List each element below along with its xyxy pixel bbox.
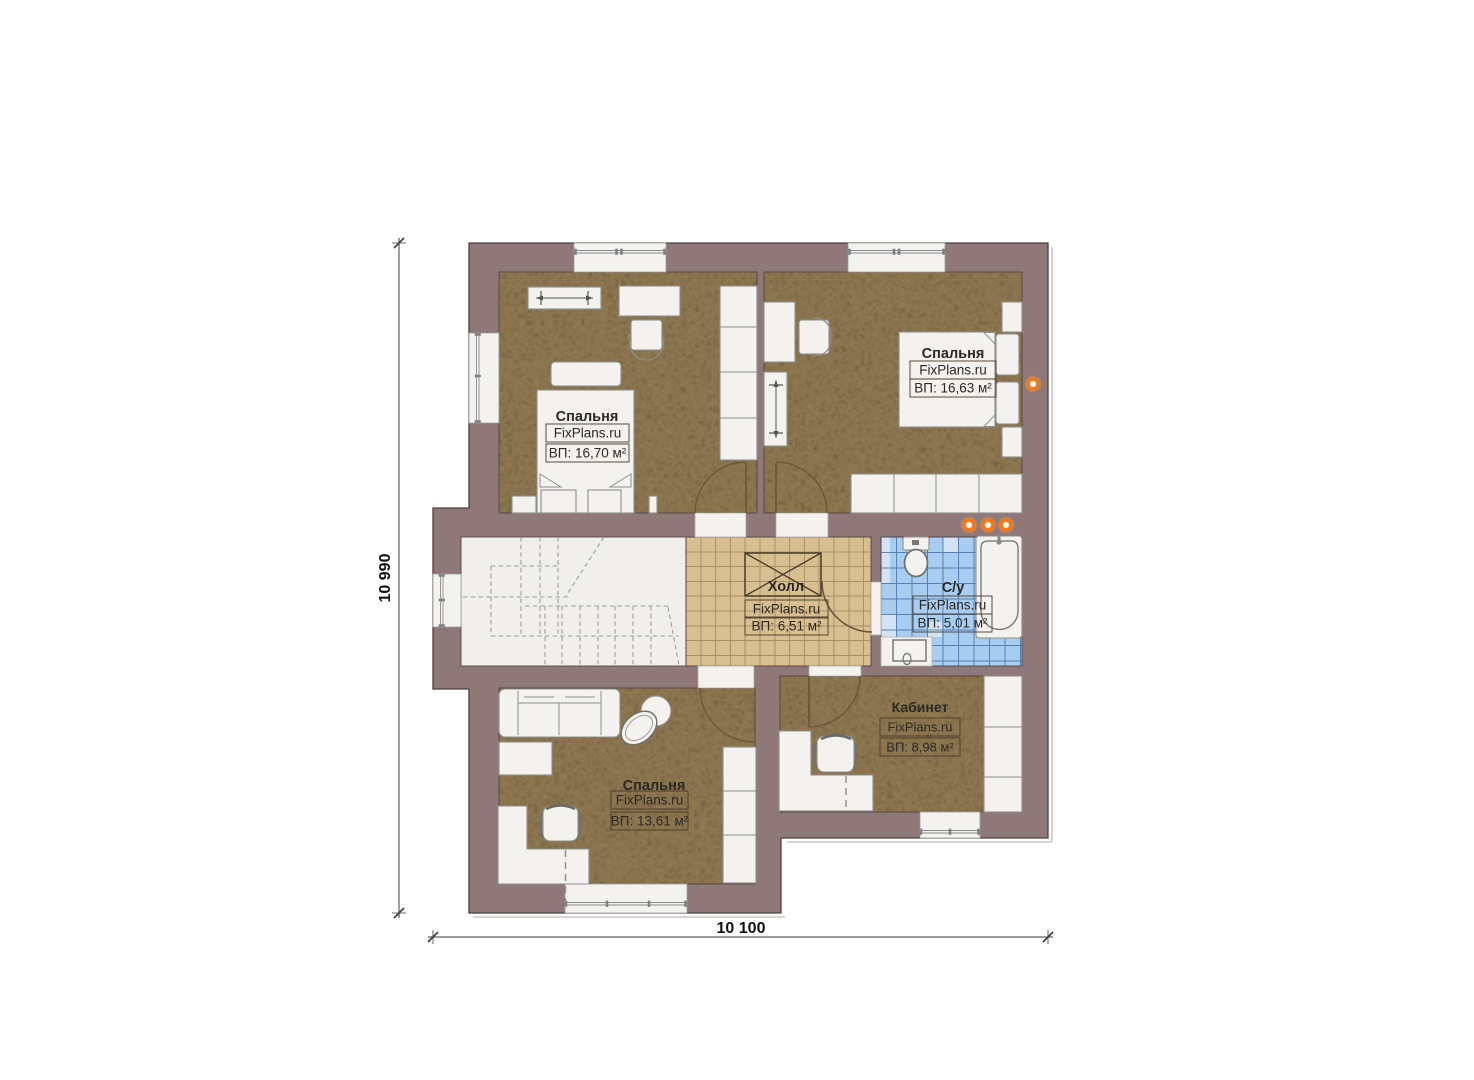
svg-text:FixPlans.ru: FixPlans.ru: [919, 598, 987, 613]
svg-text:ВП: 16,70 м²: ВП: 16,70 м²: [549, 446, 627, 461]
svg-text:ВП: 13,61 м²: ВП: 13,61 м²: [611, 814, 689, 829]
svg-text:Кабинет: Кабинет: [892, 699, 949, 715]
svg-text:Спальня: Спальня: [556, 409, 619, 425]
svg-text:С/у: С/у: [942, 580, 965, 596]
svg-text:ВП: 8,98 м²: ВП: 8,98 м²: [886, 740, 954, 755]
svg-text:ВП: 6,51 м²: ВП: 6,51 м²: [751, 619, 822, 634]
svg-text:ВП: 16,63 м²: ВП: 16,63 м²: [914, 381, 992, 396]
svg-text:FixPlans.ru: FixPlans.ru: [554, 426, 622, 441]
svg-text:FixPlans.ru: FixPlans.ru: [616, 793, 684, 808]
svg-text:10 990: 10 990: [377, 553, 394, 602]
svg-text:ВП: 5,01 м²: ВП: 5,01 м²: [917, 616, 988, 631]
svg-text:FixPlans.ru: FixPlans.ru: [753, 602, 821, 617]
svg-text:Спальня: Спальня: [922, 346, 985, 362]
svg-text:FixPlans.ru: FixPlans.ru: [887, 720, 952, 735]
svg-text:FixPlans.ru: FixPlans.ru: [919, 363, 987, 378]
svg-text:Холл: Холл: [768, 579, 804, 595]
svg-text:10 100: 10 100: [717, 920, 766, 937]
